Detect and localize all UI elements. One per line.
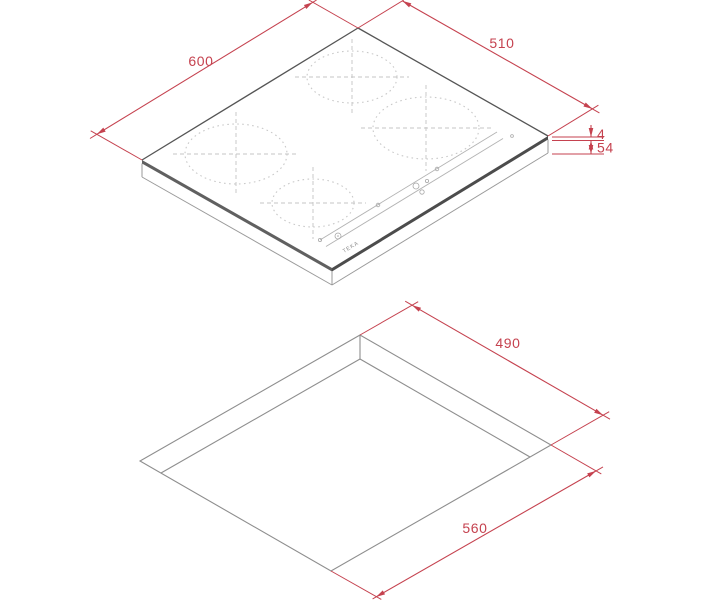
hob-depth-dimension-label: 510	[489, 35, 514, 51]
dimension-490: 490	[360, 301, 610, 445]
body-height-dimension-label: 54	[597, 140, 614, 156]
dim-560-overshoot-bottom	[373, 597, 377, 599]
technical-drawing-canvas: TEKA 600 510 4 54	[0, 0, 710, 600]
dim-560-extension-right	[551, 445, 601, 474]
dim-600-overshoot-left	[90, 134, 97, 138]
power-button-dot	[337, 235, 339, 237]
dim-510-extension-left	[358, 0, 404, 28]
dimension-560: 560	[331, 445, 603, 599]
cutout-inner-back-right-edge	[360, 359, 530, 457]
dimension-4-and-54: 4 54	[552, 125, 614, 156]
cutout-outline	[140, 335, 551, 571]
dim-490-line	[412, 305, 603, 415]
cutout-top-opening	[140, 335, 551, 571]
cutout-width-dimension-label: 560	[462, 520, 487, 536]
dim-490-extension-right	[551, 412, 609, 445]
dim-560-overshoot-right	[596, 467, 603, 471]
hob-isometric-view: TEKA 600 510 4 54	[90, 0, 614, 285]
cutout-depth-dimension-label: 490	[495, 335, 520, 351]
dim-600-overshoot-right	[313, 0, 317, 2]
technical-drawing-page: TEKA 600 510 4 54	[0, 0, 710, 600]
dim-510-overshoot-right	[592, 109, 599, 113]
dim-490-overshoot-left	[405, 301, 412, 305]
hob-width-dimension-label: 600	[188, 53, 213, 69]
dim-490-overshoot-right	[603, 415, 610, 419]
cutout-inner-back-left-edge	[161, 359, 360, 473]
cutout-isometric-view: 490 560	[140, 301, 610, 599]
dim-490-extension-left	[360, 302, 418, 335]
dim-600-extension-right	[309, 0, 358, 28]
dim-600-extension-left	[91, 131, 142, 160]
dim-560-extension-bottom	[331, 571, 381, 599]
